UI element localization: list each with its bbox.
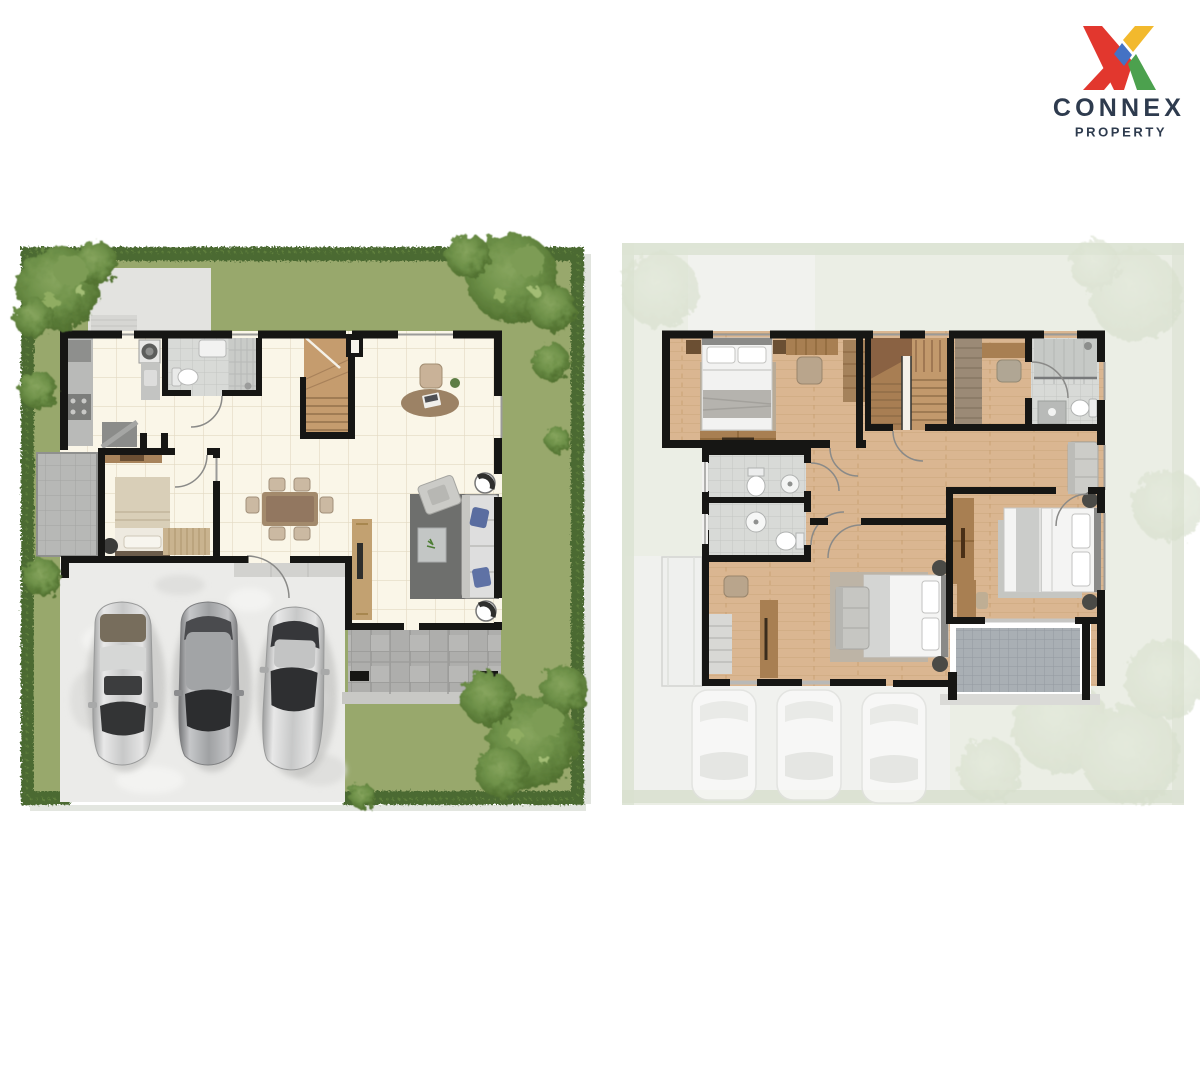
svg-text:CONNEX: CONNEX	[1053, 94, 1185, 122]
svg-text:PROPERTY: PROPERTY	[1075, 125, 1167, 140]
